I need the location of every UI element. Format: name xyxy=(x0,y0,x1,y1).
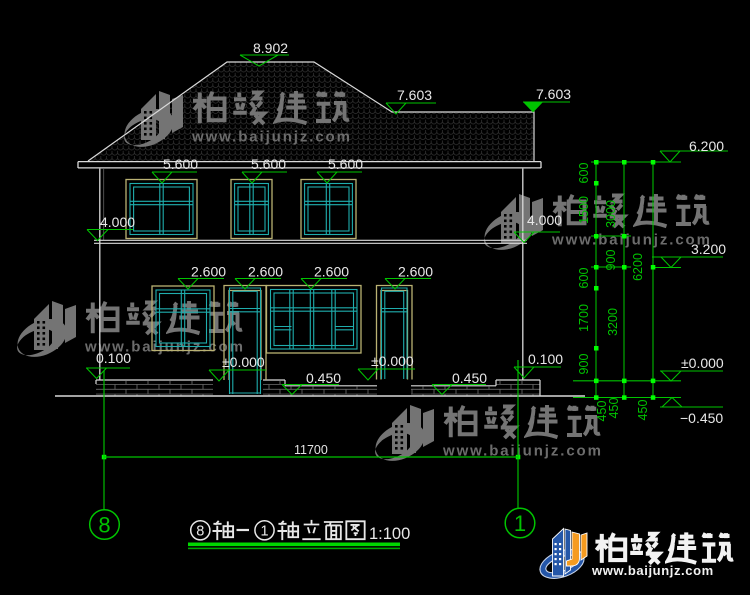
svg-text:1700: 1700 xyxy=(577,304,591,332)
svg-text:600: 600 xyxy=(577,163,591,184)
svg-text:0.100: 0.100 xyxy=(96,350,131,366)
svg-text:7.603: 7.603 xyxy=(397,87,432,103)
svg-text:0.450: 0.450 xyxy=(452,370,487,386)
svg-text:6.200: 6.200 xyxy=(689,138,724,154)
svg-text:8.902: 8.902 xyxy=(253,40,288,56)
svg-text:2.600: 2.600 xyxy=(314,264,349,280)
svg-text:900: 900 xyxy=(604,250,618,271)
svg-text:4.000: 4.000 xyxy=(527,212,562,228)
svg-text:5.600: 5.600 xyxy=(328,156,363,172)
svg-text:3200: 3200 xyxy=(606,308,620,336)
svg-text:±0.000: ±0.000 xyxy=(371,353,414,369)
svg-text:−0.450: −0.450 xyxy=(680,410,723,426)
svg-text:1500: 1500 xyxy=(577,196,591,224)
svg-text:5.600: 5.600 xyxy=(251,156,286,172)
svg-text:5.600: 5.600 xyxy=(163,156,198,172)
svg-text:450: 450 xyxy=(636,400,650,421)
svg-text:2.600: 2.600 xyxy=(191,264,226,280)
svg-text:4.000: 4.000 xyxy=(100,214,135,230)
svg-text:1: 1 xyxy=(260,524,268,540)
svg-text:450: 450 xyxy=(607,398,621,419)
svg-text:±0.000: ±0.000 xyxy=(222,354,265,370)
svg-text:8: 8 xyxy=(196,524,204,540)
svg-text:3.200: 3.200 xyxy=(691,241,726,257)
svg-text:2.600: 2.600 xyxy=(398,264,433,280)
svg-text:0.450: 0.450 xyxy=(306,370,341,386)
svg-text:3000: 3000 xyxy=(604,200,618,228)
svg-text:1: 1 xyxy=(514,511,526,536)
svg-text:0.100: 0.100 xyxy=(528,351,563,367)
svg-text:600: 600 xyxy=(577,268,591,289)
svg-text:900: 900 xyxy=(577,354,591,375)
svg-text:www.baijunjz.com: www.baijunjz.com xyxy=(591,563,714,578)
svg-text:2.600: 2.600 xyxy=(248,264,283,280)
svg-text:11700: 11700 xyxy=(294,443,328,457)
svg-text:7.603: 7.603 xyxy=(536,86,571,102)
svg-text:8: 8 xyxy=(98,513,110,538)
svg-text:±0.000: ±0.000 xyxy=(681,355,724,371)
svg-text:1:100: 1:100 xyxy=(369,525,410,543)
svg-text:6200: 6200 xyxy=(631,253,645,281)
